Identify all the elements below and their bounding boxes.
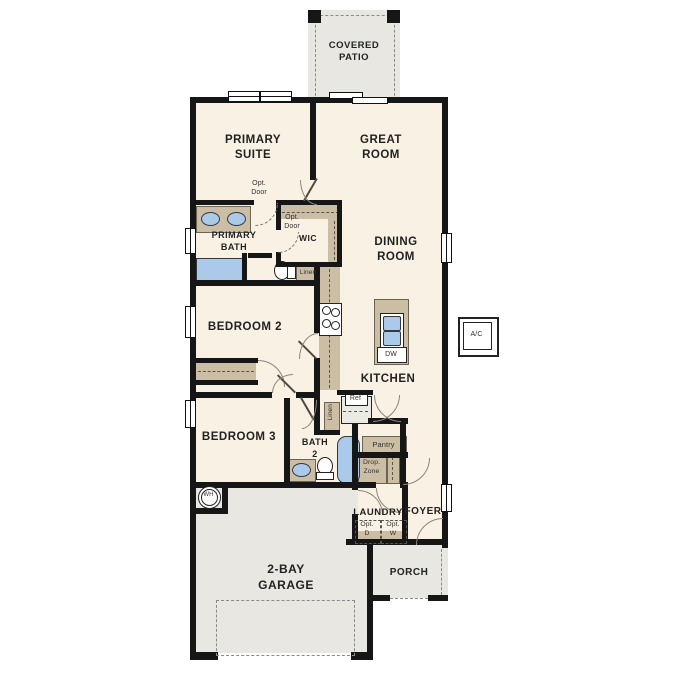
wall [367,545,373,660]
wall [442,97,448,548]
wall [352,452,408,458]
dishwasher-label: DW [377,350,405,359]
primary-tub-icon [196,258,245,282]
wall [346,482,376,488]
linen-label: Linen [327,399,335,425]
room-label-primary-bath: PRIMARY BATH [198,230,270,253]
room-label-wic: WIC [294,233,322,244]
foyer-bench [387,455,400,484]
floor-plan: COVERED PATIO PRIMARY SUITE GREAT ROOM O… [0,0,687,687]
refrigerator-line [343,411,368,412]
room-label-kitchen: KITCHEN [352,372,424,387]
opt-washer-label: Opt. W [381,521,405,539]
wall [190,380,258,385]
water-heater-label: WH [198,492,219,500]
vanity-sink-icon [201,212,220,226]
burner-icon [322,306,331,315]
room-label-porch: PORCH [380,566,438,579]
wall [190,200,254,205]
opt-door-label: Opt. Door [242,179,276,197]
ref-label: Ref [345,394,366,403]
room-label-laundry: LAUNDRY [350,507,406,519]
room-label-garage: 2-BAY GARAGE [228,562,344,593]
wall [242,253,247,280]
wall [190,358,258,363]
closet-rod [198,371,254,372]
drop-zone-label: Drop. Zone [358,459,385,477]
burner-icon [322,319,331,328]
wall [281,262,342,267]
island-sink-basin [383,316,401,331]
wall [428,595,448,601]
room-label-primary-suite: PRIMARY SUITE [192,133,314,163]
vanity-sink-icon [227,212,246,226]
room-label-bedroom-2: BEDROOM 2 [194,320,296,335]
toilet-tank [316,472,334,480]
garage-door-icon [216,600,355,656]
opt-door-label: Opt. Door [277,213,307,231]
linen-label: Linen [296,269,320,277]
island-sink-basin [383,331,401,346]
ac-label: A/C [458,330,495,339]
window [185,228,196,254]
wall [372,595,390,601]
wall [248,253,272,258]
room-label-dining-room: DINING ROOM [360,235,432,265]
room-label-bath-2: BATH 2 [297,437,333,460]
window [260,91,292,102]
burner-icon [331,308,340,317]
opt-dryer-label: Opt. D [355,521,379,539]
wall [190,482,372,488]
wall [190,652,218,660]
wall [337,200,342,267]
wic-rod [334,221,335,260]
wall [314,430,340,435]
window [228,91,260,102]
porch-step-line [390,598,428,599]
porch-edge-line [441,549,442,595]
wall [190,392,272,398]
wall [314,358,320,392]
bench-edge [392,457,393,480]
window [441,233,452,263]
room-label-foyer: FOYER [402,505,444,518]
wall [190,97,196,660]
window [185,400,196,428]
room-label-covered-patio: COVERED PATIO [308,40,400,65]
burner-icon [331,321,340,330]
pantry-label: Pantry [362,440,405,450]
patio-post [308,10,321,23]
bath2-sink-icon [292,463,311,477]
room-label-bedroom-3: BEDROOM 3 [190,430,288,445]
room-label-great-room: GREAT ROOM [322,133,440,163]
patio-slider-panel [352,97,388,104]
patio-post [387,10,400,23]
wall [190,280,319,286]
